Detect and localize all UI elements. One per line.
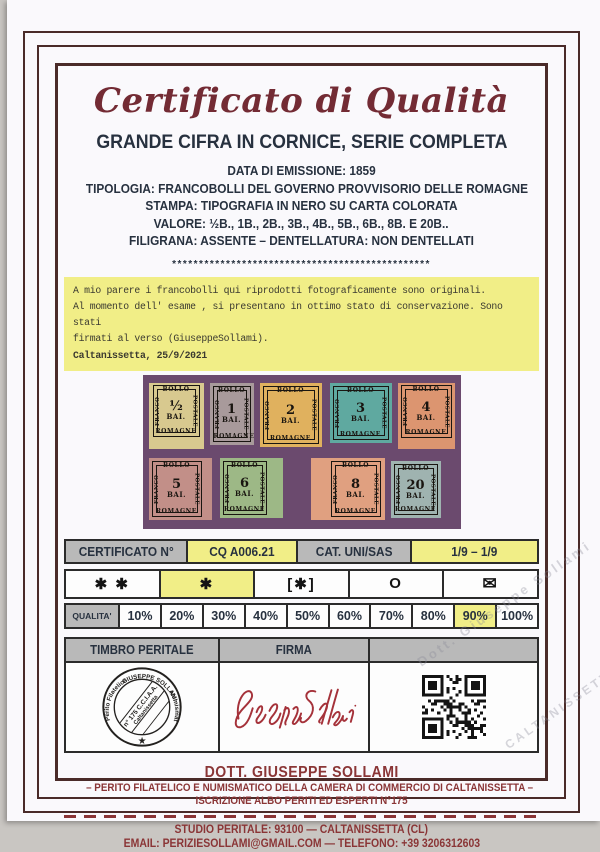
expert-registration: ISCRIZIONE ALBO PERITI ED ESPERTI N°175 <box>64 795 539 809</box>
series-subtitle: GRANDE CIFRA IN CORNICE, SERIE COMPLETA <box>64 131 539 154</box>
qr-code <box>422 675 486 739</box>
firma-header: FIRMA <box>218 639 368 661</box>
seal-star-icon: ★ <box>137 736 146 746</box>
quality-90-selected: 90% <box>453 605 495 627</box>
stamp-6-bai: BOLLO FRANCO 6BAI. POSTALE ROMAGNE <box>220 458 283 518</box>
envelope-icon: ✉ <box>442 571 537 597</box>
quality-100: 100% <box>495 605 537 627</box>
quality-10: 10% <box>118 605 160 627</box>
symbol-mh-selected: ✱ <box>159 571 254 597</box>
detail-line: STAMPA: TIPOGRAFIA IN NERO SU CARTA COLO… <box>64 197 539 215</box>
stamp-20-bai: BOLLO FRANCO 20BAI. POSTALE ROMAGNE <box>391 461 441 518</box>
stamp-4-bai: BOLLO FRANCO 4BAI. POSTALE ROMAGNE <box>398 383 455 449</box>
catalog-value: 1/9 – 1/9 <box>410 541 537 562</box>
quality-label: QUALITA' <box>66 605 118 627</box>
expert-signature: Giuseppe Sollami <box>223 674 365 740</box>
stamp-2-bai: BOLLO FRANCO 2BAI. POSTALE ROMAGNE <box>260 383 322 447</box>
stamp-unit: BAI. <box>166 413 185 421</box>
stamp-1-bai: BOLLO FRANCO 1BAI. POSTALE ROMAGNE <box>210 383 254 445</box>
studio-address: STUDIO PERITALE: 93100 — CALTANISSETTA (… <box>64 823 539 838</box>
detail-line: VALORE: ½B., 1B., 2B., 3B., 4B., 5B., 6B… <box>64 215 539 233</box>
certificate-number-row: CERTIFICATO N° CQ A006.21 CAT. UNI/SAS 1… <box>64 539 539 564</box>
expert-footer: DOTT. GIUSEPPE SOLLAMI – PERITO FILATELI… <box>64 764 539 852</box>
expert-seal-icon: Perito Filatelico GIUSEPPE SOLLAMI Numis… <box>100 665 184 749</box>
detail-line: TIPOLOGIA: FRANCOBOLLI DEL GOVERNO PROVV… <box>64 180 539 198</box>
page-title: Certificato di Qualità <box>64 80 539 122</box>
frame-inner: Certificato di Qualità GRANDE CIFRA IN C… <box>55 63 548 781</box>
asterisk-separator: ****************************************… <box>64 259 539 271</box>
signature-cell: Giuseppe Sollami <box>218 663 368 751</box>
timbro-header: TIMBRO PERITALE <box>66 639 218 661</box>
quality-30: 30% <box>202 605 244 627</box>
catalog-label: CAT. UNI/SAS <box>296 541 410 562</box>
stamps-row-1: BOLLO FRANCO ½BAI. POSTALE ROMAGNE <box>149 383 455 449</box>
stamp-8-bai: BOLLO FRANCO 8BAI. POSTALE ROMAGNE <box>311 458 385 520</box>
dashed-divider <box>64 815 539 818</box>
certificate-content: Certificato di Qualità GRANDE CIFRA IN C… <box>58 66 545 778</box>
verification-body: Perito Filatelico GIUSEPPE SOLLAMI Numis… <box>66 663 537 751</box>
stamp-label-bottom: ROMAGNE <box>154 428 199 436</box>
quality-20: 20% <box>160 605 202 627</box>
symbol-mnh: ✱ ✱ <box>66 571 159 597</box>
certificato-n-value: CQ A006.21 <box>186 541 296 562</box>
quality-60: 60% <box>328 605 370 627</box>
detail-line: DATA DI EMISSIONE: 1859 <box>64 162 539 180</box>
qr-header <box>368 639 537 661</box>
opinion-dateline: Caltanissetta, 25/9/2021 <box>73 348 530 364</box>
quality-70: 70% <box>369 605 411 627</box>
stamp-label-top: BOLLO <box>154 386 199 394</box>
symbol-used: O <box>348 571 443 597</box>
stamp-label-left: FRANCO <box>154 394 162 428</box>
certificato-n-label: CERTIFICATO N° <box>66 541 186 562</box>
stamp-half-bai: BOLLO FRANCO ½BAI. POSTALE ROMAGNE <box>149 383 204 449</box>
quality-50: 50% <box>286 605 328 627</box>
verification-header: TIMBRO PERITALE FIRMA <box>66 639 537 663</box>
stamps-photo: BOLLO FRANCO ½BAI. POSTALE ROMAGNE <box>143 375 461 529</box>
stamps-row-2: BOLLO FRANCO 5BAI. POSTALE ROMAGNE <box>149 458 455 520</box>
opinion-line: firmati al verso (GiuseppeSollami). <box>73 331 530 347</box>
expert-name: DOTT. GIUSEPPE SOLLAMI <box>64 764 539 782</box>
stamp-3-bai: BOLLO FRANCO 3BAI. POSTALE ROMAGNE <box>330 383 392 443</box>
quality-80: 80% <box>411 605 453 627</box>
contact-info: EMAIL: PERIZIESOLLAMI@GMAIL.COM — TELEFO… <box>64 837 539 852</box>
expert-opinion-box: A mio parere i francobolli qui riprodott… <box>64 277 539 371</box>
detail-line: FILIGRANA: ASSENTE – DENTELLATURA: NON D… <box>64 232 539 250</box>
expert-role: – PERITO FILATELICO E NUMISMATICO DELLA … <box>64 782 539 796</box>
qr-code-cell <box>368 663 537 751</box>
stamp-label-right: POSTALE <box>191 394 199 428</box>
quality-40: 40% <box>244 605 286 627</box>
symbol-no-gum: [✱] <box>253 571 348 597</box>
frame-middle: Certificato di Qualità GRANDE CIFRA IN C… <box>37 45 566 799</box>
quality-row: QUALITA' 10% 20% 30% 40% 50% 60% 70% 80%… <box>64 603 539 629</box>
verification-table: TIMBRO PERITALE FIRMA <box>64 637 539 753</box>
condition-symbols-row: ✱ ✱ ✱ [✱] O ✉ <box>64 569 539 599</box>
emission-details: DATA DI EMISSIONE: 1859 TIPOLOGIA: FRANC… <box>64 162 539 250</box>
opinion-line: A mio parere i francobolli qui riprodott… <box>73 283 530 299</box>
stamp-5-bai: BOLLO FRANCO 5BAI. POSTALE ROMAGNE <box>149 458 212 520</box>
opinion-line: Al momento dell' esame , si presentano i… <box>73 299 530 332</box>
certificate-page: Certificato di Qualità GRANDE CIFRA IN C… <box>7 0 600 821</box>
frame-outer: Certificato di Qualità GRANDE CIFRA IN C… <box>23 31 580 813</box>
expert-seal-cell: Perito Filatelico GIUSEPPE SOLLAMI Numis… <box>66 663 218 751</box>
